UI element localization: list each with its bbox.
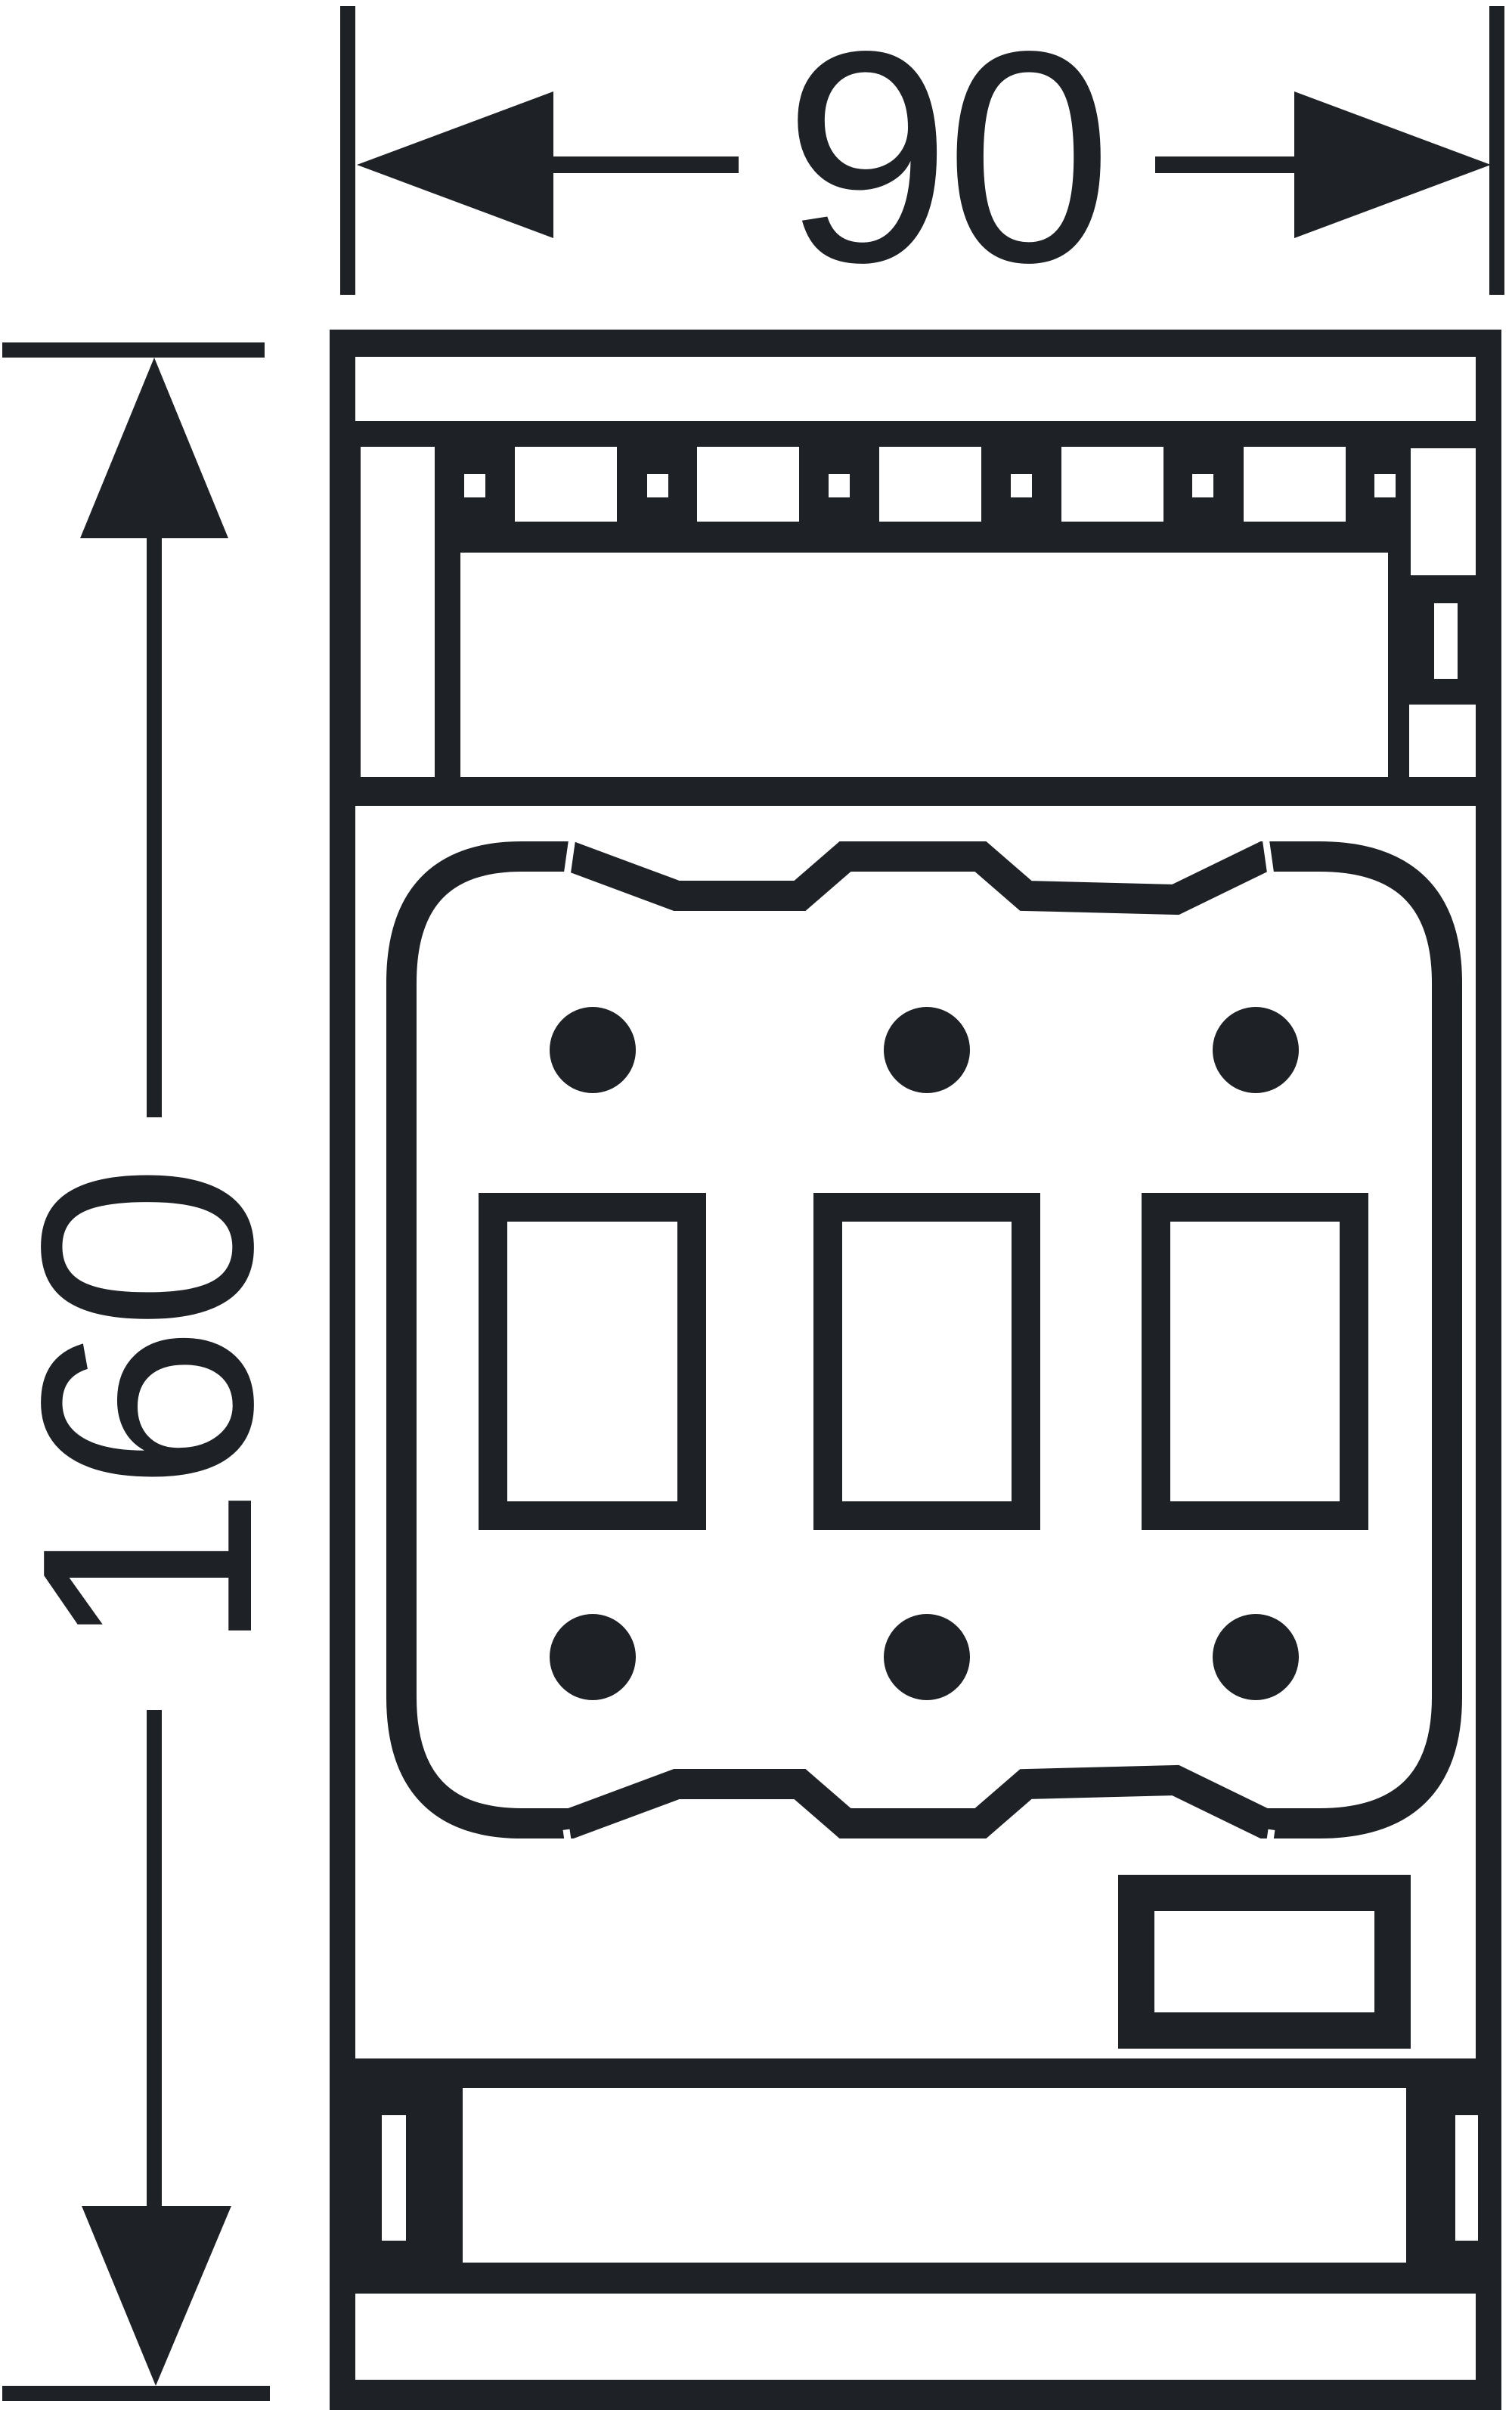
- fuse-window-glass: [507, 1222, 677, 1501]
- lower-terminal-opening: [463, 2088, 1406, 2263]
- fuse-window-glass: [842, 1222, 1012, 1501]
- contact-dot: [550, 1007, 636, 1093]
- lower-terminal-block: [330, 2058, 1501, 2410]
- left-channel-slot: [361, 447, 435, 777]
- terminal-opening: [879, 447, 981, 522]
- arrowhead-down-icon: [82, 2206, 231, 2386]
- bottom-cable-channel: [355, 2294, 1476, 2380]
- dimension-drawing-page: 90 160: [0, 0, 1512, 2410]
- right-channel-upper-slot: [1411, 448, 1476, 575]
- enclosure-top-edge: [330, 330, 1501, 357]
- terminal-slot: [1374, 474, 1396, 497]
- terminal-opening: [697, 447, 799, 522]
- dimension-line-upper-segment: [147, 535, 162, 1117]
- right-channel-lower-slot: [1409, 705, 1476, 777]
- contact-dot: [550, 1614, 636, 1700]
- contact-dot: [1213, 1007, 1299, 1093]
- terminal-opening: [1061, 447, 1163, 522]
- nameplate: [460, 553, 1388, 777]
- device-body: [330, 330, 1501, 2410]
- dimension-line-lower-segment: [147, 1710, 162, 2207]
- extension-line-top: [2, 342, 265, 358]
- right-channel-narrow-slot: [1434, 603, 1458, 679]
- fuse-cover: [401, 832, 1447, 1879]
- upper-terminal-block: [355, 421, 1476, 806]
- dimension-line-left-segment: [548, 156, 739, 173]
- handle-recess: [1118, 1875, 1411, 2049]
- terminal-slot: [647, 474, 668, 497]
- terminal-slot: [829, 474, 850, 497]
- terminal-slot: [1011, 474, 1032, 497]
- dimension-line-right-segment: [1155, 156, 1300, 173]
- terminal-slot: [464, 474, 485, 497]
- terminal-opening: [1244, 447, 1346, 522]
- width-dimension-label: 90: [784, 0, 1107, 325]
- fuse-switch-dimension-drawing: 90 160: [0, 0, 1512, 2410]
- width-dimension: 90: [340, 0, 1504, 325]
- extension-line-bottom: [2, 2386, 270, 2401]
- arrowhead-left-icon: [357, 91, 553, 238]
- lower-side-slot: [382, 2115, 406, 2241]
- lower-side-slot: [1455, 2115, 1478, 2241]
- contact-dot: [884, 1007, 970, 1093]
- height-dimension: 160: [0, 342, 315, 2401]
- fuse-window-glass: [1170, 1222, 1340, 1501]
- handle-recess-opening: [1154, 1911, 1374, 2012]
- arrowhead-up-icon: [80, 358, 228, 538]
- extension-line-left: [340, 6, 355, 295]
- fuse-window: [1142, 1193, 1368, 1530]
- fuse-window: [479, 1193, 706, 1530]
- contact-dot: [1213, 1614, 1299, 1700]
- terminal-opening: [515, 447, 617, 522]
- contact-dot: [884, 1614, 970, 1700]
- terminal-slot: [1192, 474, 1213, 497]
- height-dimension-label: 160: [0, 1169, 315, 1653]
- fuse-window: [813, 1193, 1040, 1530]
- extension-line-right: [1489, 6, 1504, 295]
- arrowhead-right-icon: [1294, 91, 1491, 238]
